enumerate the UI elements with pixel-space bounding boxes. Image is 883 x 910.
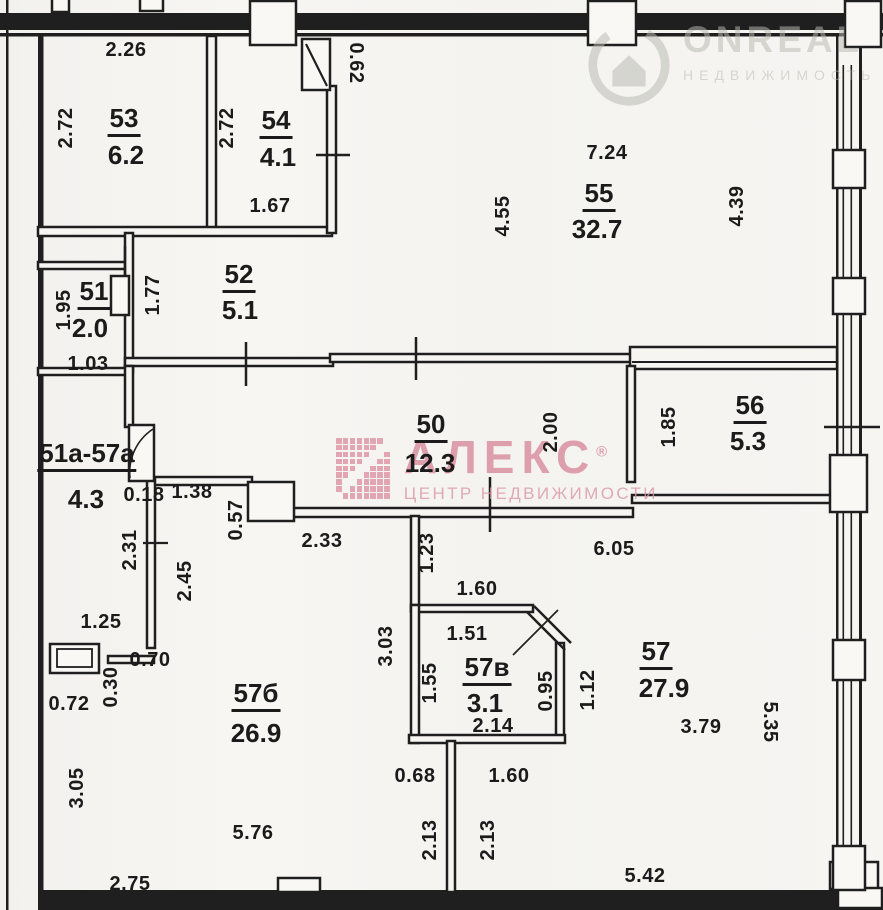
dimension-label: 3.79: [681, 717, 722, 737]
dimension-label: 1.95: [54, 290, 74, 331]
dimension-label: 2.00: [541, 412, 561, 453]
dimension-label: 0.30: [101, 667, 121, 708]
dimension-label: 1.25: [81, 612, 122, 632]
dimension-label: 1.77: [143, 275, 163, 316]
dimension-label: 2.14: [473, 716, 514, 736]
dimension-label: 1.38: [172, 482, 213, 502]
room-number: 57б: [232, 680, 281, 712]
room-area: 26.9: [231, 720, 282, 746]
dimension-label: 3.03: [376, 626, 396, 667]
plan-labels-layer: 536.2544.15532.7512.0525.15012.3565.351а…: [0, 0, 883, 910]
room-number: 56: [734, 392, 767, 424]
dimension-label: 2.33: [302, 531, 343, 551]
dimension-label: 5.76: [233, 823, 274, 843]
room-area: 4.1: [260, 144, 296, 170]
dimension-label: 1.60: [489, 766, 530, 786]
dimension-label: 2.72: [56, 108, 76, 149]
dimension-label: 4.39: [727, 186, 747, 227]
dimension-label: 6.05: [594, 539, 635, 559]
dimension-label: 7.24: [587, 143, 628, 163]
dimension-label: 3.05: [67, 768, 87, 809]
room-area: 2.0: [72, 315, 108, 341]
dimension-label: 1.23: [417, 533, 437, 574]
dimension-label: 0.62: [346, 43, 366, 84]
dimension-label: 1.55: [420, 663, 440, 704]
dimension-label: 1.12: [578, 670, 598, 711]
room-area: 6.2: [108, 142, 144, 168]
room-number: 57: [640, 638, 673, 670]
room-area: 5.3: [730, 428, 766, 454]
dimension-label: 0.95: [536, 671, 556, 712]
dimension-label: 0.18: [124, 485, 165, 505]
dimension-label: 2.13: [420, 820, 440, 861]
room-number: 55: [583, 180, 616, 212]
dimension-label: 1.60: [457, 579, 498, 599]
room-area: 4.3: [68, 486, 104, 512]
floorplan-scan: ONREAL НЕДВИЖИМОСТЬ АЛЕКС® ЦЕНТР НЕДВИЖИ…: [0, 0, 883, 910]
dimension-label: 1.85: [659, 407, 679, 448]
dimension-label: 0.70: [130, 650, 171, 670]
room-area: 27.9: [639, 675, 690, 701]
room-area: 5.1: [222, 297, 258, 323]
room-area: 32.7: [572, 216, 623, 242]
dimension-label: 2.45: [175, 561, 195, 602]
dimension-label: 4.55: [493, 196, 513, 237]
dimension-label: 2.31: [120, 530, 140, 571]
room-number: 54: [260, 107, 293, 139]
dimension-label: 2.75: [110, 874, 151, 894]
dimension-label: 5.35: [760, 702, 780, 743]
dimension-label: 1.03: [68, 354, 109, 374]
dimension-label: 0.68: [395, 766, 436, 786]
room-number: 53: [108, 105, 141, 137]
dimension-label: 5.42: [625, 866, 666, 886]
room-number: 50: [415, 411, 448, 443]
dimension-label: 0.72: [49, 694, 90, 714]
room-number: 52: [223, 261, 256, 293]
dimension-label: 2.13: [478, 820, 498, 861]
dimension-label: 0.57: [226, 500, 246, 541]
room-number: 51: [78, 278, 111, 310]
room-area: 12.3: [405, 450, 456, 476]
room-number: 51а-57а: [37, 440, 136, 472]
dimension-label: 1.67: [250, 196, 291, 216]
dimension-label: 1.51: [447, 624, 488, 644]
dimension-label: 2.26: [106, 40, 147, 60]
room-area: 3.1: [467, 690, 503, 716]
dimension-label: 2.72: [217, 108, 237, 149]
room-number: 57в: [463, 654, 512, 686]
